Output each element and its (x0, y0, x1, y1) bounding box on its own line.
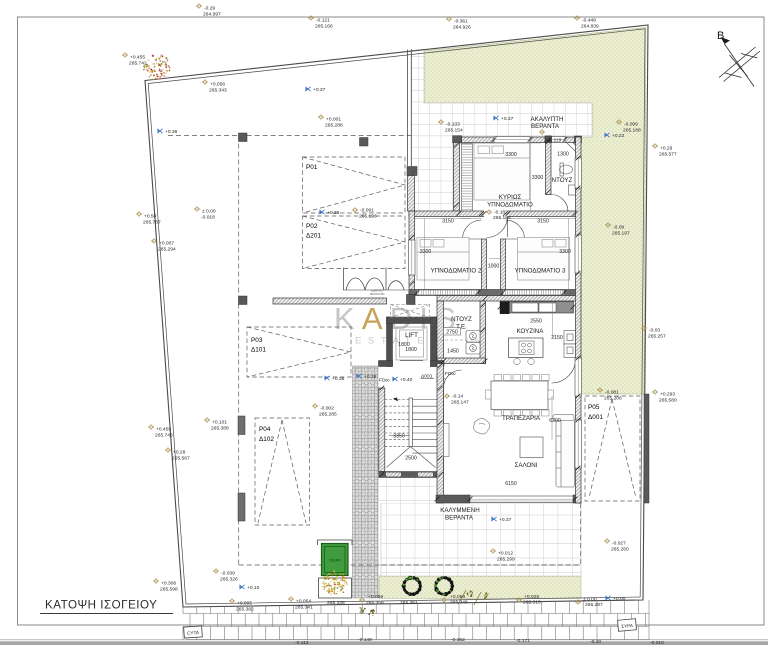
svg-text:1800: 1800 (405, 347, 417, 353)
svg-text:264.997: 264.997 (203, 11, 221, 17)
svg-text:+0.39: +0.39 (364, 374, 377, 380)
svg-text:+0.37: +0.37 (313, 87, 326, 93)
svg-text:+0.37: +0.37 (501, 116, 514, 122)
svg-text:265.580: 265.580 (659, 397, 677, 403)
svg-text:ΚΑΛΥΜΜΕΝΗ: ΚΑΛΥΜΜΕΝΗ (440, 507, 479, 514)
svg-text:+0.38: +0.38 (327, 210, 340, 216)
svg-text:Δ201: Δ201 (306, 233, 321, 240)
svg-text:+0.459: +0.459 (156, 427, 171, 433)
svg-text:2500: 2500 (405, 456, 417, 462)
svg-text:-0.018: -0.018 (201, 214, 215, 220)
svg-text:+0.054: +0.054 (296, 599, 311, 605)
svg-text:ΚΑΤΟΨΗ ΙΣΟΓΕΙΟΥ: ΚΑΤΟΨΗ ΙΣΟΓΕΙΟΥ (45, 599, 157, 612)
svg-text:LIFT: LIFT (405, 332, 418, 339)
svg-text:-0.29: -0.29 (204, 6, 215, 12)
svg-text:3300: 3300 (559, 249, 571, 255)
svg-text:+0.059: +0.059 (450, 594, 465, 600)
svg-text:265.260: 265.260 (611, 546, 629, 552)
svg-text:ΒΕΡΑΝΤΑ: ΒΕΡΑΝΤΑ (445, 515, 474, 522)
svg-text:265.119: 265.119 (544, 137, 562, 143)
svg-text:+0.37: +0.37 (499, 517, 512, 523)
svg-text:-0.20: -0.20 (590, 639, 601, 645)
svg-text:P02: P02 (306, 223, 318, 230)
svg-text:ΣΑΛΟΝΙ: ΣΑΛΟΝΙ (515, 462, 538, 469)
svg-text:+0.22: +0.22 (612, 133, 625, 139)
svg-text:265.299: 265.299 (497, 556, 515, 562)
svg-text:CYTA: CYTA (187, 630, 200, 636)
svg-text:Τ.Ε.: Τ.Ε. (456, 324, 467, 331)
svg-text:Δ102: Δ102 (259, 436, 274, 443)
svg-text:P01: P01 (306, 164, 318, 171)
svg-text:ΝΤΟΥΖ: ΝΤΟΥΖ (451, 316, 472, 323)
svg-text:3300: 3300 (420, 249, 432, 255)
svg-text:+0.012: +0.012 (498, 551, 513, 557)
svg-text:ΚΥΡΙΩΣ: ΚΥΡΙΩΣ (499, 194, 522, 201)
svg-text:265.336: 265.336 (327, 600, 345, 606)
svg-text:+0.40: +0.40 (400, 377, 413, 383)
svg-text:+0.028: +0.028 (524, 594, 539, 600)
svg-text:-0.091: -0.091 (360, 208, 374, 214)
svg-text:ΜΕΤΡΗΤΩΝ: ΜΕΤΡΗΤΩΝ (370, 292, 385, 296)
svg-text:265.341: 265.341 (295, 604, 313, 610)
svg-text:-0.171: -0.171 (516, 638, 530, 644)
svg-text:265.196: 265.196 (359, 213, 377, 219)
svg-text:ΝΤΟΥΖ: ΝΤΟΥΖ (552, 177, 573, 184)
svg-text:ΑΚΑΛΥΠΤΗ: ΑΚΑΛΥΠΤΗ (531, 116, 564, 123)
svg-text:265.742: 265.742 (129, 60, 147, 66)
svg-text:2750: 2750 (446, 330, 458, 336)
svg-text:265.188: 265.188 (623, 127, 641, 133)
svg-text:+0.38: +0.38 (332, 376, 345, 382)
svg-text:265.206: 265.206 (604, 395, 622, 401)
svg-text:ΥΠΝΟΔΩΜΑΤΙΟ 2: ΥΠΝΟΔΩΜΑΤΙΟ 2 (431, 268, 482, 275)
svg-text:-0.182: -0.182 (494, 210, 508, 216)
svg-text:265.382: 265.382 (236, 606, 254, 612)
svg-text:265.787: 265.787 (143, 219, 161, 225)
svg-text:265.285: 265.285 (319, 411, 337, 417)
svg-text:+0.059: +0.059 (368, 594, 383, 600)
svg-text:265.154: 265.154 (445, 127, 463, 133)
svg-text:ΥΠΝΟΔΩΜΑΤΙΟ: ΥΠΝΟΔΩΜΑΤΙΟ (487, 202, 533, 209)
svg-text:ΒΕΡΑΝΤΑ: ΒΕΡΑΝΤΑ (531, 123, 560, 130)
svg-text:+0.28: +0.28 (173, 450, 186, 456)
svg-text:ΥΠΝΟΔΩΜΑΤΙΟ 3: ΥΠΝΟΔΩΜΑΤΙΟ 3 (515, 268, 566, 275)
svg-text:265.351: 265.351 (400, 600, 418, 606)
svg-text:+0.056: +0.056 (210, 82, 225, 88)
svg-text:265.346: 265.346 (450, 600, 468, 606)
svg-text:265.257: 265.257 (648, 333, 666, 339)
svg-text:-0.081: -0.081 (605, 390, 619, 396)
svg-text:265.197: 265.197 (612, 230, 630, 236)
svg-text:+0.095: +0.095 (237, 601, 252, 607)
svg-text:-0.113: -0.113 (295, 640, 309, 645)
svg-text:265.288: 265.288 (325, 122, 343, 128)
svg-text:+0.001: +0.001 (326, 117, 341, 123)
svg-text:-0.002: -0.002 (320, 406, 334, 412)
svg-text:265.294: 265.294 (158, 246, 176, 252)
svg-text:1450: 1450 (447, 349, 459, 355)
svg-text:+0.29: +0.29 (660, 146, 673, 152)
svg-text:+0.36: +0.36 (165, 129, 178, 135)
svg-text:B: B (717, 30, 724, 42)
svg-text:265.343: 265.343 (209, 87, 227, 93)
svg-text:P04: P04 (259, 426, 271, 433)
svg-text:-0.010: -0.010 (650, 640, 664, 645)
svg-text:-0.162: -0.162 (451, 637, 465, 643)
svg-text:± 0,00: ± 0,00 (202, 209, 216, 215)
svg-text:ΤΡΑΠΕΖΑΡΙΑ: ΤΡΑΠΕΖΑΡΙΑ (502, 415, 541, 422)
svg-text:265.287: 265.287 (585, 602, 603, 608)
svg-text:265.567: 265.567 (172, 455, 190, 461)
svg-text:265.746: 265.746 (155, 432, 173, 438)
svg-text:-0.14: -0.14 (452, 394, 463, 400)
svg-text:265.577: 265.577 (659, 151, 677, 157)
svg-text:265.326: 265.326 (220, 576, 238, 582)
svg-text:265.166: 265.166 (315, 23, 333, 29)
svg-text:-0.448: -0.448 (582, 18, 596, 24)
svg-text:Δ101: Δ101 (251, 347, 266, 354)
svg-text:-0.027: -0.027 (612, 541, 626, 547)
svg-text:+0.293: +0.293 (660, 392, 675, 398)
svg-text:-0.039: -0.039 (221, 571, 235, 577)
svg-text:3300: 3300 (505, 152, 517, 158)
svg-text:+0.455: +0.455 (130, 55, 145, 61)
svg-text:-0.148: -0.148 (358, 637, 372, 643)
svg-text:6200: 6200 (549, 418, 561, 424)
svg-text:264.926: 264.926 (453, 24, 471, 30)
svg-text:3150: 3150 (442, 219, 454, 225)
svg-text:3350: 3350 (393, 434, 405, 440)
svg-text:-0.133: -0.133 (446, 122, 460, 128)
svg-text:3150: 3150 (537, 219, 549, 225)
svg-text:-0.03: -0.03 (649, 328, 660, 334)
svg-text:+0.10: +0.10 (247, 585, 260, 591)
svg-text:3300: 3300 (532, 175, 544, 181)
svg-text:Δ001: Δ001 (588, 414, 603, 421)
svg-text:+0.007: +0.007 (159, 241, 174, 247)
svg-text:-0.121: -0.121 (316, 18, 330, 24)
svg-text:265.185: 265.185 (493, 215, 511, 221)
svg-text:6150: 6150 (505, 481, 517, 487)
svg-text:-0.09: -0.09 (613, 225, 624, 231)
svg-text:2150: 2150 (551, 335, 563, 341)
svg-text:P03: P03 (251, 337, 263, 344)
svg-text:ΣΚ/ΑΠ: ΣΚ/ΑΠ (329, 558, 341, 563)
svg-text:P05: P05 (588, 404, 600, 411)
svg-text:-0.361: -0.361 (454, 19, 468, 25)
svg-text:ΚΟΥΖΙΝΑ: ΚΟΥΖΙΝΑ (517, 328, 545, 335)
svg-text:2550: 2550 (530, 319, 542, 325)
svg-text:265.147: 265.147 (451, 399, 469, 405)
svg-text:1300: 1300 (557, 152, 569, 158)
svg-text:+0.00: +0.00 (613, 596, 626, 602)
svg-text:+0.101: +0.101 (212, 420, 227, 426)
svg-text:+0.306: +0.306 (161, 581, 176, 587)
svg-text:265.388: 265.388 (211, 425, 229, 431)
svg-text:1000: 1000 (488, 264, 500, 270)
svg-text:265.356: 265.356 (366, 600, 384, 606)
svg-text:264.839: 264.839 (581, 23, 599, 29)
svg-text:± 0.00: ± 0.00 (583, 597, 597, 603)
svg-text:+0.50: +0.50 (144, 214, 157, 220)
svg-text:-0.099: -0.099 (624, 122, 638, 128)
svg-text:265.315: 265.315 (523, 600, 541, 606)
svg-text:265.598: 265.598 (160, 586, 178, 592)
